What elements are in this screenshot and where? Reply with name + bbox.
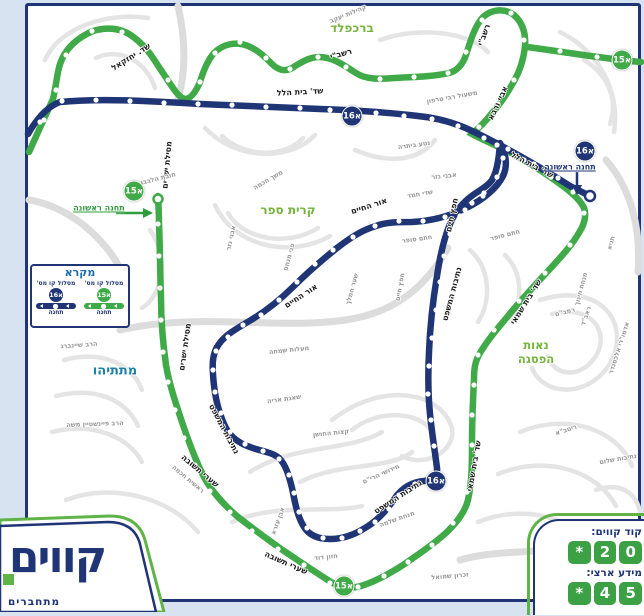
bus-stop-dot — [457, 213, 462, 218]
legend-direction-arrow — [66, 304, 69, 308]
bus-stop-dot — [327, 580, 332, 585]
legend-line-sample — [36, 303, 76, 309]
bus-stop-dot — [119, 29, 124, 34]
bus-stop-dot — [433, 307, 438, 312]
bus-stop-dot — [373, 110, 378, 115]
bus-stop-dot — [476, 124, 481, 129]
bus-stop-dot — [158, 317, 163, 322]
legend-route-badge: א15 — [97, 288, 111, 302]
bus-stop-dot — [479, 17, 484, 22]
bus-stop-dot — [594, 54, 599, 59]
legend-column: מסלול קו מס'א16תחנה — [36, 280, 76, 316]
bus-stop-dot — [229, 102, 234, 107]
bus-stop-dot — [425, 391, 430, 396]
bus-stop-dot — [350, 234, 355, 239]
dial-key: 5 — [619, 582, 642, 605]
bus-stop-dot — [450, 520, 455, 525]
bus-stop-dot — [447, 231, 452, 236]
bus-stop-dot — [441, 253, 446, 258]
bus-stop-dot — [429, 542, 434, 547]
bus-stop-dot — [276, 456, 281, 461]
bus-stop-dot — [508, 10, 513, 15]
bus-stop-dot — [275, 546, 280, 551]
bus-stop-dot — [165, 379, 170, 384]
bus-stop-dot — [542, 270, 547, 275]
bus-stop-dot — [258, 312, 263, 317]
bus-stop-dot — [557, 48, 562, 53]
bus-stop-dot — [548, 174, 553, 179]
bus-stop-dot — [301, 562, 306, 567]
bus-stop-dot — [401, 113, 406, 118]
bus-stop-dot — [372, 519, 377, 524]
bus-stop-dot — [377, 76, 382, 81]
legend-station-label: תחנה — [96, 309, 111, 316]
bus-stop-dot — [263, 104, 268, 109]
terminal-stops — [154, 191, 596, 204]
bus-stop-dot — [475, 352, 480, 357]
bus-stop-dot — [464, 489, 469, 494]
bus-stop-dot — [249, 528, 254, 533]
bus-stop-dot — [405, 559, 410, 564]
bus-stop-dot — [181, 435, 186, 440]
bus-stop-dot — [396, 218, 401, 223]
legend-title: מקרא — [65, 267, 96, 279]
bus-stop-dot — [431, 443, 436, 448]
page: { "colors":{"route_green":"#3faa47","rou… — [0, 0, 644, 612]
bus-stop-dot — [396, 492, 401, 497]
logo-accent-square — [3, 574, 14, 585]
bus-stop-dot — [330, 247, 335, 252]
bus-stop-dot — [420, 218, 425, 223]
bus-stop-dot — [495, 101, 500, 106]
bus-stop-dot — [276, 297, 281, 302]
bus-stop-dot — [505, 146, 510, 151]
bus-stop-dot — [463, 49, 468, 54]
bus-stop-dot — [469, 442, 474, 447]
logo-tagline: מתחברים — [8, 596, 60, 608]
bus-stop-dot — [445, 70, 450, 75]
bus-stop-dot — [494, 174, 499, 179]
bus-stop-dot — [172, 407, 177, 412]
bus-stop-dot — [93, 97, 98, 102]
bus-stop-dot — [339, 535, 344, 540]
bus-stop-dot — [59, 98, 64, 103]
bus-stop-dot — [494, 142, 499, 147]
bus-stop-dot — [500, 155, 505, 160]
bus-stop-dot — [156, 253, 161, 258]
bus-stop-dot — [455, 123, 460, 128]
bus-stop-dot — [237, 39, 242, 44]
bus-stop-dot — [320, 535, 325, 540]
bus-stop-dot — [218, 410, 223, 415]
bus-stop-dot — [242, 441, 247, 446]
bus-stop-dot — [357, 528, 362, 533]
first-station-arrows — [116, 172, 582, 218]
bus-stop-dot — [197, 79, 202, 84]
bus-stop-dot — [381, 573, 386, 578]
dial-key: * — [568, 541, 591, 564]
legend-direction-arrow — [40, 304, 43, 308]
bus-stop-dot — [442, 214, 447, 219]
bus-stop-dot — [429, 116, 434, 121]
bus-stop-dot — [213, 348, 218, 353]
bus-stop-dot — [581, 210, 586, 215]
bus-stop-dot — [297, 105, 302, 110]
bus-stop-dot — [471, 382, 476, 387]
bus-stop-dot — [411, 74, 416, 79]
bus-stop-dot — [491, 327, 496, 332]
legend-columns: מסלול קו מס'א15תחנהמסלול קו מס'א16תחנה — [36, 280, 124, 316]
bus-stop-dot — [296, 509, 301, 514]
bus-stop-dot — [437, 279, 442, 284]
bus-stop-dot — [207, 488, 212, 493]
bus-stop-dot — [516, 298, 521, 303]
bus-stop-dot — [227, 429, 232, 434]
bus-stop-dot — [155, 221, 160, 226]
dial-codes-panel: קוד קווים:*20מידע ארצי:*45 — [527, 513, 644, 615]
dial-codes-panel-body: קוד קווים:*20מידע ארצי:*45 — [533, 519, 644, 615]
dial-key: 0 — [619, 541, 642, 564]
bus-stop-dot — [53, 87, 58, 92]
bus-stop-dot — [355, 584, 360, 589]
bus-stop-dot — [312, 261, 317, 266]
bus-stop-dot — [469, 200, 474, 205]
bus-stop-dot — [469, 412, 474, 417]
bus-stop-dot — [165, 77, 170, 82]
bus-stop-dot — [210, 367, 215, 372]
bus-stop-dot — [143, 46, 148, 51]
bus-stop-dot — [386, 506, 391, 511]
legend-station-label: תחנה — [48, 309, 63, 316]
bus-stop-dot — [37, 119, 42, 124]
legend-stop-dot — [101, 304, 106, 309]
bus-stop-dot — [343, 64, 348, 69]
bus-stop-dot — [481, 135, 486, 140]
bus-stop-dot — [263, 55, 268, 60]
dial-key: * — [568, 582, 591, 605]
bus-stop-dot — [531, 161, 536, 166]
legend-caption: מסלול קו מס' — [37, 280, 76, 287]
dial-key: 4 — [594, 582, 617, 605]
bus-stop-dot — [372, 223, 377, 228]
legend-column: מסלול קו מס'א15תחנה — [84, 280, 124, 316]
route-16a-loop-path — [213, 143, 506, 539]
bus-stop-dot — [294, 279, 299, 284]
bus-stop-dot — [212, 389, 217, 394]
dial-code-label: מידע ארצי: — [535, 567, 642, 580]
bus-stop-dot — [429, 335, 434, 340]
bus-stop-dot — [481, 190, 486, 195]
bus-stop-dot — [225, 334, 230, 339]
bus-stop-dot — [567, 242, 572, 247]
legend-stop-dot — [53, 304, 58, 309]
bus-stop-dot — [462, 207, 467, 212]
bus-stop-dot — [192, 462, 197, 467]
bus-stop-dot — [240, 322, 245, 327]
legend-caption: מסלול קו מס' — [85, 280, 124, 287]
bus-stop-dot — [227, 509, 232, 514]
bus-stop-dot — [428, 417, 433, 422]
legend-direction-arrow — [88, 304, 91, 308]
bus-stop-dot — [426, 363, 431, 368]
bus-stop-dot — [287, 66, 292, 71]
bus-stop-dot — [160, 349, 165, 354]
bus-stop-dot — [304, 525, 309, 530]
bus-stop-dot — [161, 100, 166, 105]
bus-stop-dot — [412, 481, 417, 486]
bus-stop-dot — [521, 37, 526, 42]
dial-key: 2 — [594, 541, 617, 564]
bus-stop-dot — [89, 28, 94, 33]
bus-stop-dot — [127, 98, 132, 103]
legend-line-sample — [84, 303, 124, 309]
logo-wordmark: קווים — [0, 536, 134, 580]
bus-stop-dot — [511, 77, 516, 82]
bus-stop-dot — [260, 448, 265, 453]
bus-stop-dot — [212, 50, 217, 55]
bus-stop-dot — [291, 490, 296, 495]
legend-direction-arrow — [114, 304, 117, 308]
dial-code-keys: *20 — [535, 541, 642, 564]
kavim-logo: קווים מתחברים — [0, 510, 200, 612]
bus-stop-dot — [195, 101, 200, 106]
bus-stop-dot — [286, 472, 291, 477]
dial-code-label: קוד קווים: — [535, 526, 642, 539]
dial-code-keys: *45 — [535, 582, 642, 605]
bus-stop-dot — [521, 157, 526, 162]
bus-stop-dot — [315, 54, 320, 59]
bus-stop-dot — [327, 107, 332, 112]
legend-route-badge: א16 — [49, 288, 63, 302]
bus-stop-dot — [555, 175, 560, 180]
bus-stop-dot — [63, 52, 68, 57]
bus-stop-dot — [157, 285, 162, 290]
legend: מקרא מסלול קו מס'א15תחנהמסלול קו מס'א16ת… — [30, 264, 130, 328]
